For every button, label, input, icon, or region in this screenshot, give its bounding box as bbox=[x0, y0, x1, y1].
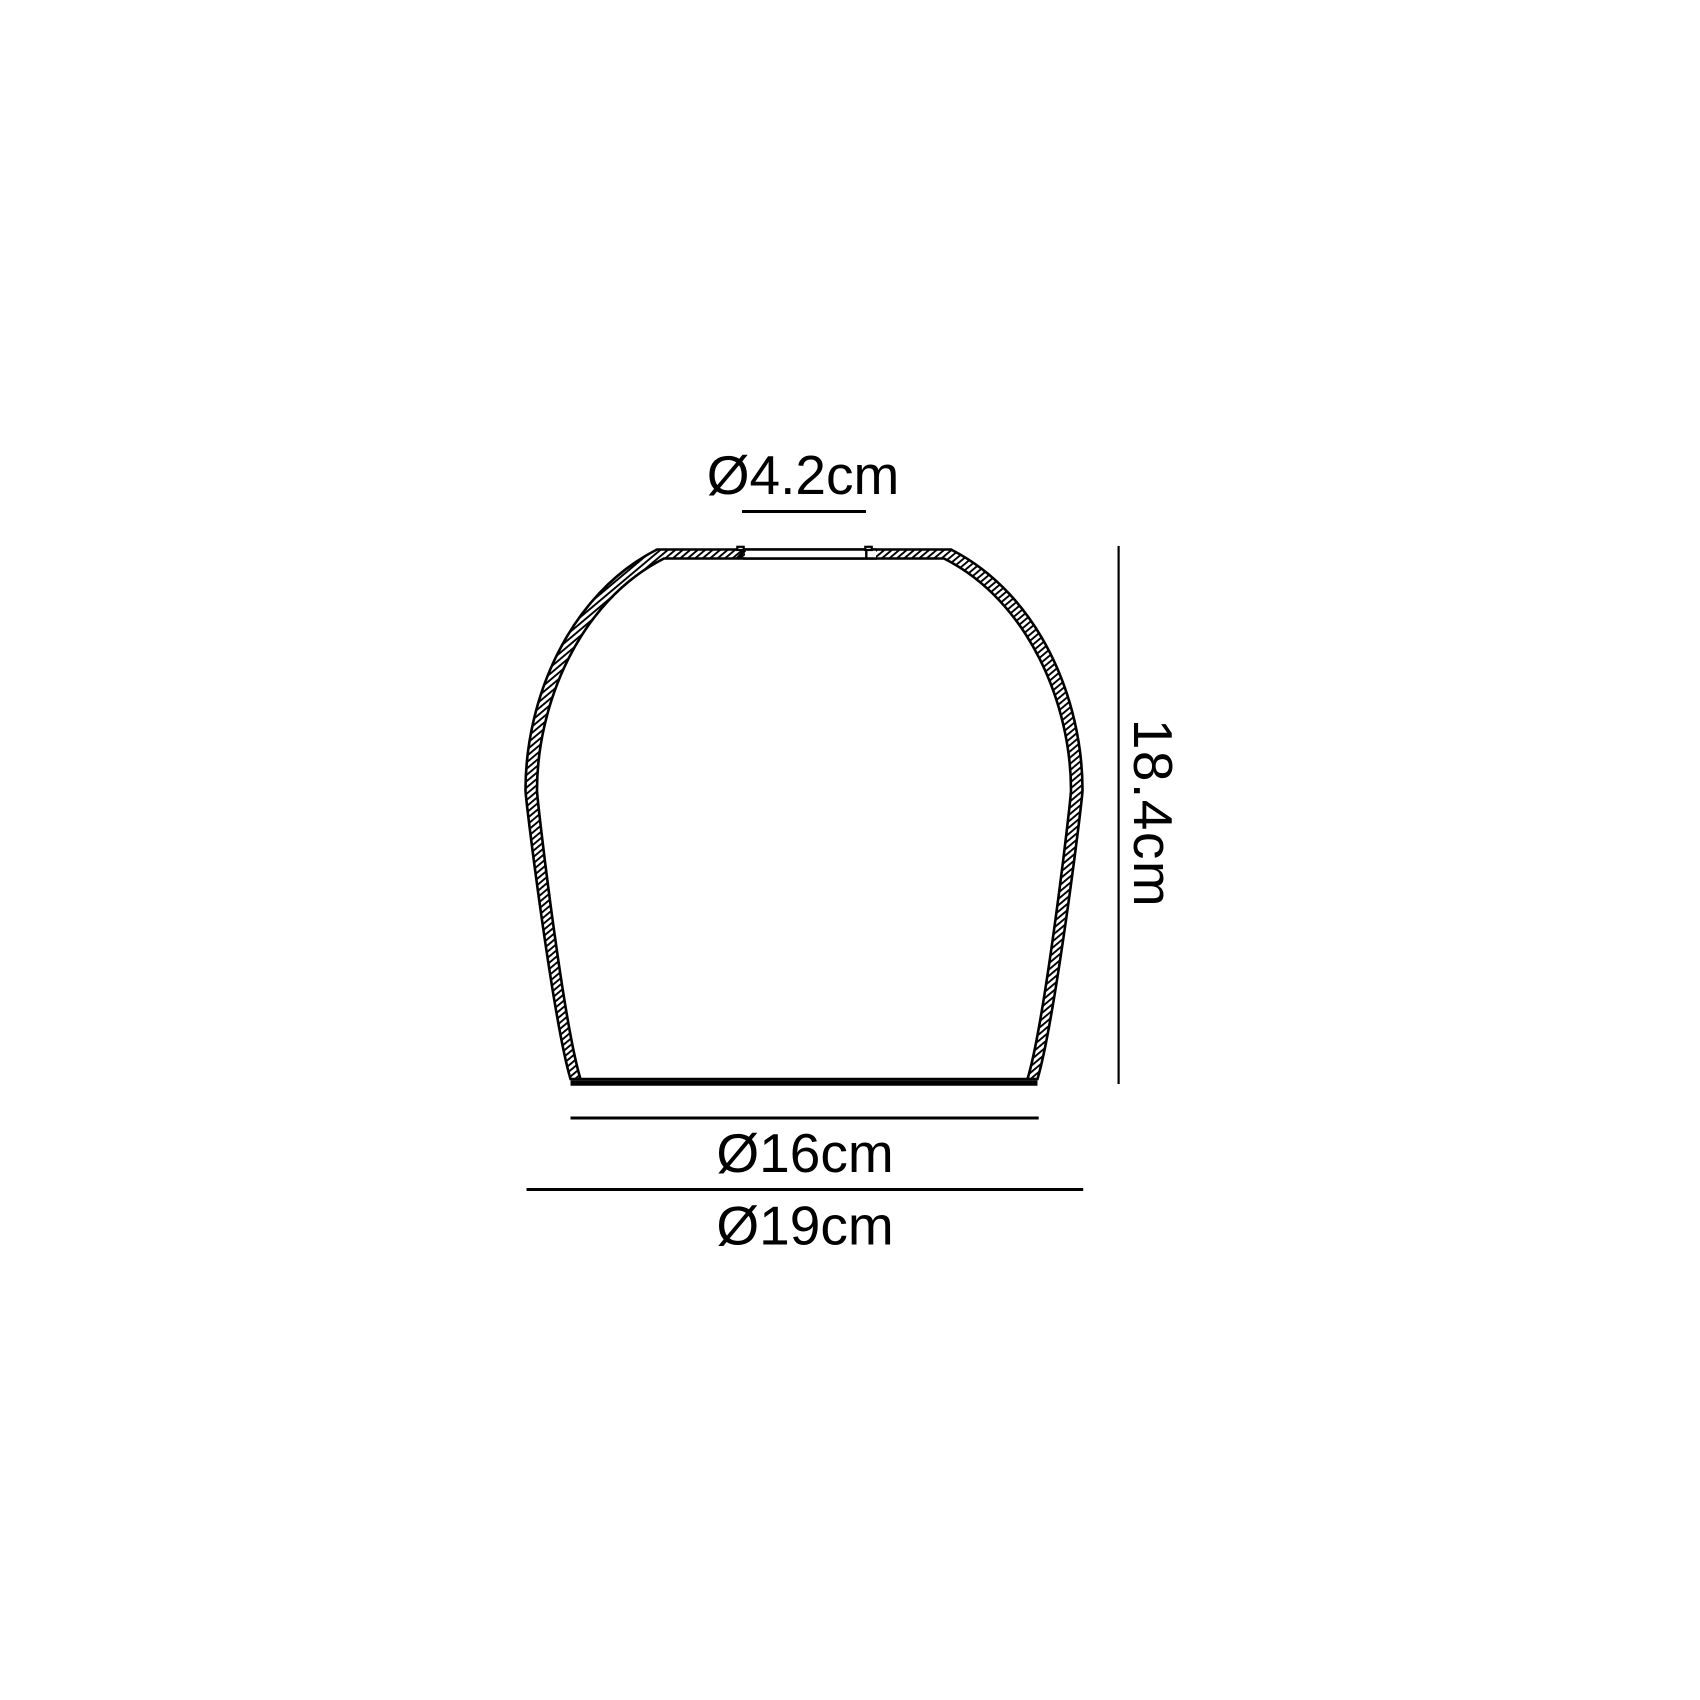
svg-text:Ø4.2cm: Ø4.2cm bbox=[707, 444, 900, 506]
svg-text:Ø16cm: Ø16cm bbox=[716, 1122, 893, 1184]
svg-text:18.4cm: 18.4cm bbox=[1122, 719, 1184, 908]
svg-text:Ø19cm: Ø19cm bbox=[716, 1195, 893, 1257]
